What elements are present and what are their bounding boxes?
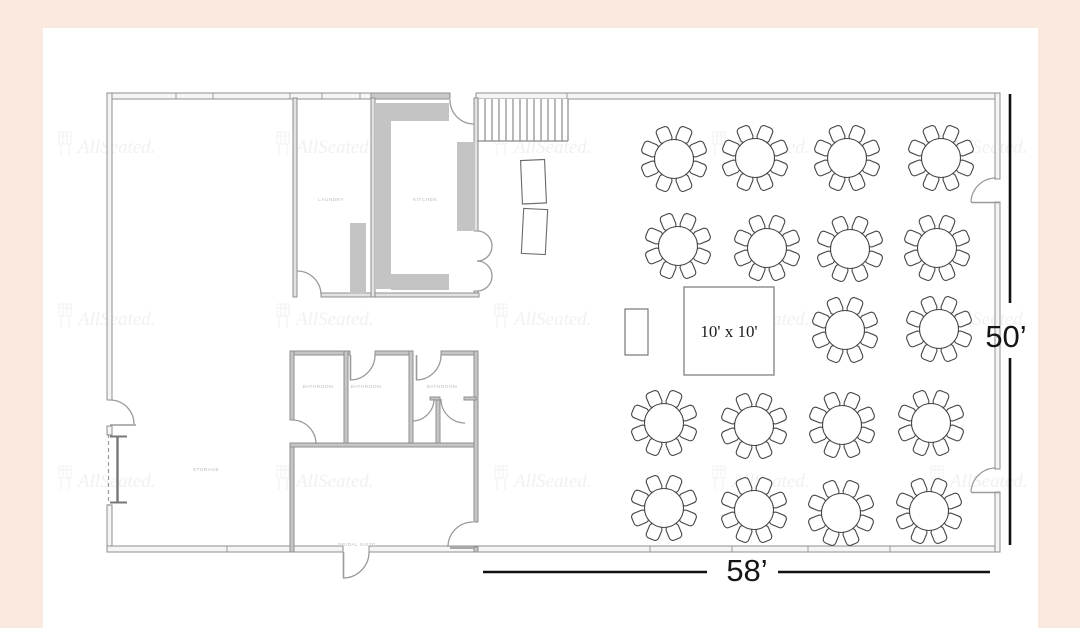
svg-text:BATHROOM: BATHROOM	[303, 384, 334, 390]
svg-text:AllSeated.: AllSeated.	[294, 309, 374, 330]
svg-text:58’: 58’	[726, 553, 767, 588]
svg-text:AllSeated.: AllSeated.	[294, 471, 374, 492]
svg-text:BATHROOM: BATHROOM	[351, 384, 382, 390]
svg-text:KITCHEN: KITCHEN	[413, 197, 437, 203]
svg-text:STORAGE: STORAGE	[193, 467, 219, 473]
svg-text:AllSeated.: AllSeated.	[76, 471, 156, 492]
svg-text:AllSeated.: AllSeated.	[512, 471, 592, 492]
svg-text:LAUNDRY: LAUNDRY	[318, 197, 344, 203]
svg-text:AllSeated.: AllSeated.	[294, 137, 374, 158]
svg-text:BATHROOM: BATHROOM	[427, 384, 458, 390]
svg-text:AllSeated.: AllSeated.	[948, 471, 1028, 492]
svg-text:50’: 50’	[985, 319, 1026, 354]
svg-text:10' x 10': 10' x 10'	[700, 322, 757, 341]
svg-text:BRIDAL SUITE: BRIDAL SUITE	[338, 542, 375, 548]
svg-text:AllSeated.: AllSeated.	[76, 137, 156, 158]
svg-text:AllSeated.: AllSeated.	[512, 309, 592, 330]
svg-text:AllSeated.: AllSeated.	[76, 309, 156, 330]
